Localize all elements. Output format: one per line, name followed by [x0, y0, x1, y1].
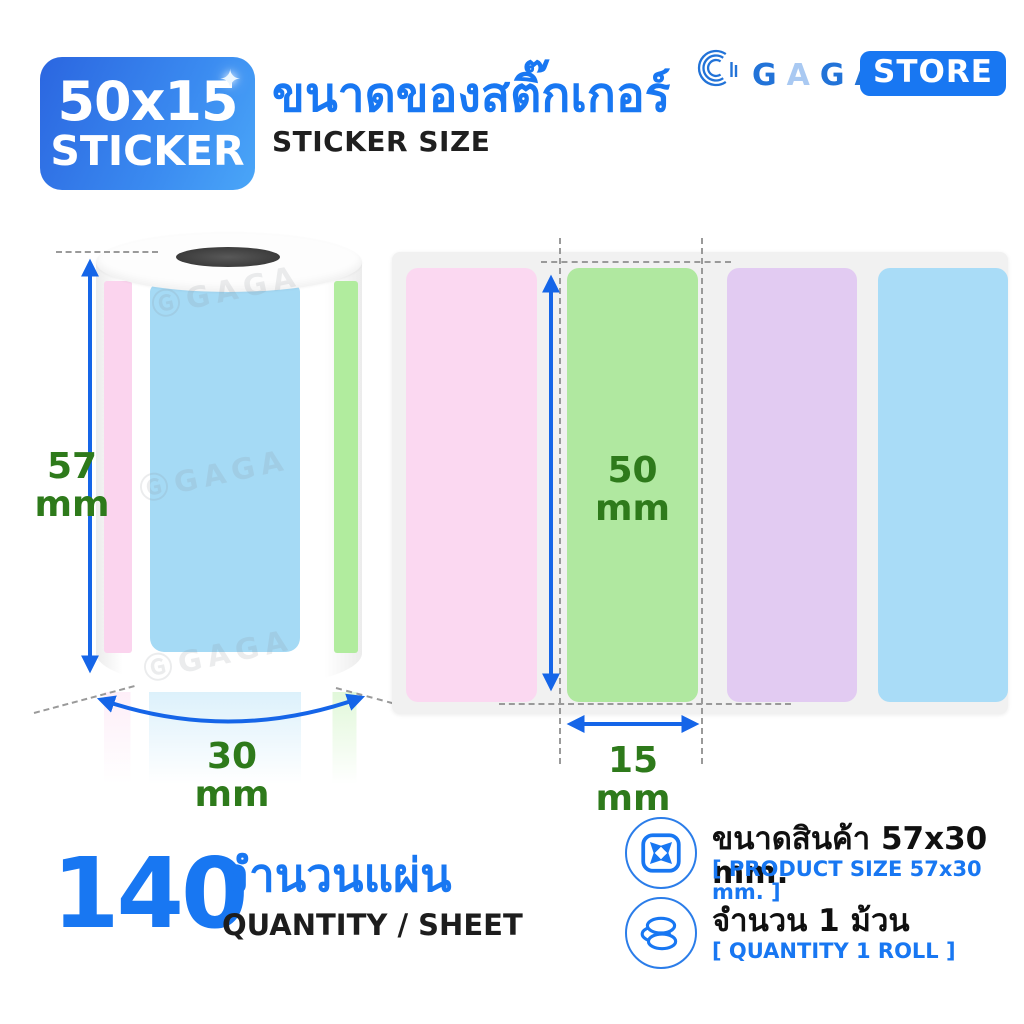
page-title: ขนาดของสติ๊กเกอร์ STICKER SIZE — [272, 68, 670, 158]
sticker-height-arrow — [533, 266, 569, 700]
quantity-value: 140 — [52, 845, 245, 942]
quantity-label-thai: จำนวนแผ่น — [222, 848, 452, 903]
gaga-letter: A — [787, 58, 810, 93]
spec-quantity-english: [ QUANTITY 1 ROLL ] — [712, 940, 956, 963]
sticker-height-unit: mm — [567, 490, 698, 528]
sheet-sticker-pink — [406, 268, 537, 702]
sparkle-icon: ✦ — [219, 65, 241, 95]
sticker-width-label: 15 mm — [560, 742, 706, 818]
title-thai: ขนาดของสติ๊กเกอร์ — [272, 68, 670, 123]
roll-height-unit: mm — [14, 486, 130, 524]
sheet-sticker-purple — [727, 268, 857, 702]
quantity-label-english: QUANTITY / SHEET — [222, 908, 523, 942]
title-english: STICKER SIZE — [272, 125, 670, 158]
size-badge: ✦ 50x15 STICKER — [40, 57, 255, 190]
spec-quantity-thai: จำนวน 1 ม้วน — [712, 904, 910, 938]
sheet-sticker-blue — [878, 268, 1008, 702]
gaga-letter: G — [820, 58, 845, 93]
roll-width-label: 30 mm — [174, 738, 290, 814]
sticker-width-unit: mm — [560, 780, 706, 818]
roll-height-label: 57 mm — [14, 448, 130, 524]
badge-sticker-label: STICKER — [50, 130, 244, 173]
roll-width-unit: mm — [174, 776, 290, 814]
expand-icon — [625, 817, 697, 889]
coins-icon — [625, 897, 697, 969]
sheet-dash-guide-right — [701, 238, 703, 764]
sticker-height-value: 50 — [567, 452, 698, 490]
sticker-height-label: 50 mm — [567, 452, 698, 528]
gaga-letter: G — [752, 58, 777, 93]
roll-height-value: 57 — [14, 448, 130, 486]
sticker-width-arrow — [560, 707, 706, 741]
badge-size-text: 50x15 — [57, 74, 237, 129]
roll-width-value: 30 — [174, 738, 290, 776]
spec-size-english: [ PRODUCT SIZE 57x30 mm. ] — [712, 858, 1024, 904]
product-infographic: ✦ 50x15 STICKER ขนาดของสติ๊กเกอร์ STICKE… — [0, 0, 1024, 1024]
sticker-width-value: 15 — [560, 742, 706, 780]
roll-strip-green — [334, 281, 358, 653]
store-badge: STORE — [860, 51, 1006, 96]
sheet-dash-guide-top — [541, 261, 731, 263]
gaga-wordmark: G A G A — [752, 58, 878, 93]
gaga-logo-mark-icon — [696, 44, 744, 92]
sheet-dash-guide-bottom — [499, 703, 791, 705]
